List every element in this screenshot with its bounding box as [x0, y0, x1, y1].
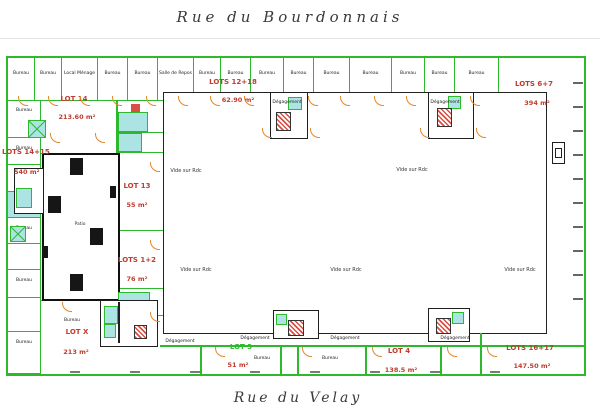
wall	[116, 230, 163, 231]
corridor-label: Dégagement	[272, 101, 301, 106]
street-name-bottom: Rue du Velay	[234, 390, 363, 406]
room-label: Bureau	[362, 72, 378, 77]
office-room: Bureau	[8, 270, 40, 298]
lot-label: LOTS 6+7	[515, 81, 553, 88]
window-tick	[573, 226, 583, 228]
room-label: Bureau	[40, 72, 56, 77]
wall	[297, 345, 299, 374]
room-label: Local Ménage	[64, 72, 95, 77]
void-label: Vide sur Rdc	[396, 168, 427, 173]
lot-label: LOTS 14+15	[2, 149, 50, 156]
room-label: Bureau	[400, 72, 416, 77]
stairs-icon	[288, 320, 304, 336]
corridor-label: Dégagement	[165, 340, 194, 345]
window-tick	[250, 371, 260, 373]
void-label: Vide sur Rdc	[180, 268, 211, 273]
stairs-icon	[276, 112, 291, 131]
room-label: Bureau	[104, 72, 120, 77]
room-label: Bureau	[16, 341, 32, 346]
shaft-icon	[28, 120, 46, 138]
room-label: Salle de Repos	[159, 72, 192, 77]
lot-label: LOTS 1+2	[118, 257, 156, 264]
window-tick	[310, 371, 320, 373]
wall	[200, 345, 202, 374]
room-label: Bureau	[254, 357, 270, 362]
pillar	[70, 158, 83, 175]
floor-plan-page: Rue du Bourdonnais Rue du Velay BureauBu…	[0, 0, 600, 420]
window-tick	[573, 202, 583, 204]
office-room: Bureau	[8, 58, 35, 100]
lot-label: LOT 13	[123, 183, 150, 190]
street-name-top: Rue du Bourdonnais	[177, 8, 404, 26]
pillar	[90, 228, 103, 245]
wall	[116, 152, 163, 153]
wall	[440, 345, 442, 374]
wall	[365, 345, 367, 374]
stair-marker	[131, 104, 140, 112]
window-tick	[130, 371, 140, 373]
lot-area: 213 m²	[63, 349, 88, 356]
elevator-car	[555, 148, 562, 158]
stairs-icon	[437, 108, 452, 127]
lot-area: 55 m²	[127, 202, 148, 209]
sanitary-room	[104, 306, 118, 324]
sanitary-room	[118, 112, 148, 132]
office-room: Bureau	[128, 58, 158, 100]
void-label: Vide sur Rdc	[170, 169, 201, 174]
room-label: Bureau	[16, 109, 32, 114]
lot-label: LOT 3	[230, 344, 252, 351]
room-label: Bureau	[431, 72, 447, 77]
stairs-icon	[134, 325, 147, 339]
window-tick	[70, 371, 80, 373]
window-tick	[430, 371, 440, 373]
sanitary-room	[16, 188, 32, 208]
wall-stub	[42, 246, 48, 258]
room-label: Bureau	[13, 72, 29, 77]
room-label: Bureau	[16, 279, 32, 284]
lot-area: 394 m²	[524, 100, 549, 107]
office-room	[8, 244, 40, 270]
lot-area: 76 m²	[127, 276, 148, 283]
room-label: Bureau	[64, 319, 80, 324]
lot-label: LOTS 16+17	[506, 345, 554, 352]
central-void-outline	[163, 92, 547, 334]
room-label: Bureau	[468, 72, 484, 77]
corridor-label: Dégagement	[240, 337, 269, 342]
lot-area: 540 m²	[14, 169, 39, 176]
window-tick	[573, 274, 583, 276]
sanitary-room	[104, 324, 116, 338]
sanitary-room	[452, 312, 464, 324]
void-label: Vide sur Rdc	[504, 268, 535, 273]
shaft-icon	[10, 226, 26, 242]
void-label: Vide sur Rdc	[330, 268, 361, 273]
lot-label: LOT 4	[388, 348, 410, 355]
lot-area: 51 m²	[228, 362, 249, 369]
patio-label: Patio	[74, 223, 85, 228]
room-label: Bureau	[227, 72, 243, 77]
window-tick	[573, 250, 583, 252]
pillar	[70, 274, 83, 291]
scan-fold-line	[0, 38, 600, 39]
window-tick	[573, 178, 583, 180]
wall-stub	[110, 186, 116, 198]
room-label: Bureau	[290, 72, 306, 77]
room-label: Bureau	[259, 72, 275, 77]
room-label: Bureau	[322, 357, 338, 362]
lot-label: LOT X	[66, 329, 89, 336]
window-tick	[490, 371, 500, 373]
window-tick	[370, 371, 380, 373]
wall	[280, 345, 282, 374]
corridor-label: Dégagement	[430, 101, 459, 106]
office-room: Local Ménage	[62, 58, 98, 100]
office-room	[8, 298, 40, 332]
office-room: Bureau	[98, 58, 128, 100]
office-room: Bureau	[35, 58, 62, 100]
room-label: Bureau	[199, 72, 215, 77]
window-tick	[573, 106, 583, 108]
room-label: Bureau	[323, 72, 339, 77]
window-tick	[573, 130, 583, 132]
lot-area: 138.5 m²	[385, 367, 417, 374]
window-tick	[190, 371, 200, 373]
lot-area: 147.50 m²	[514, 363, 551, 370]
stairs-icon	[436, 318, 451, 334]
wall	[116, 288, 163, 289]
sanitary-room	[276, 314, 287, 325]
room-label: Bureau	[134, 72, 150, 77]
wall	[480, 333, 482, 374]
office-room: Bureau	[8, 332, 40, 374]
corridor-label: Dégagement	[440, 337, 469, 342]
lot-area: 213.60 m²	[59, 114, 96, 121]
corridor-label: Dégagement	[330, 337, 359, 342]
wall	[118, 302, 120, 343]
window-tick	[573, 298, 583, 300]
window-tick	[573, 154, 583, 156]
window-tick	[573, 82, 583, 84]
pillar	[48, 196, 61, 213]
lot-label: LOTS 12+18	[209, 79, 257, 86]
sanitary-room	[118, 133, 142, 152]
